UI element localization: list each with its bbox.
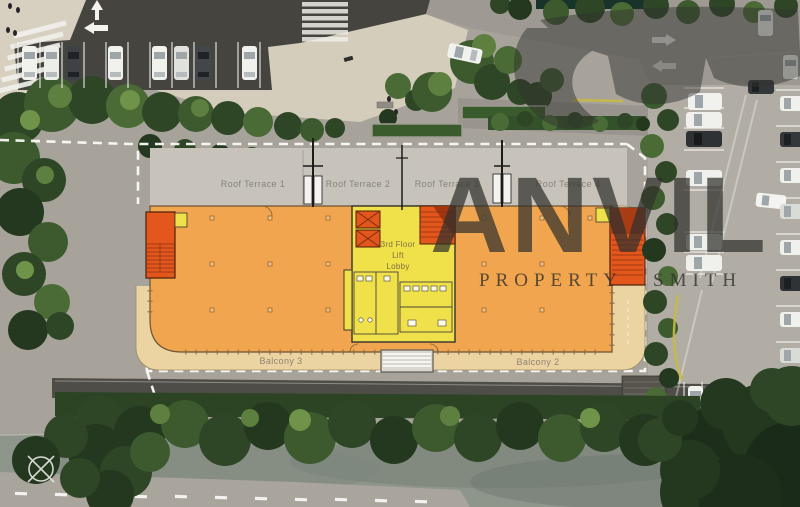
roof-terrace-2-label: Roof Terrace 2	[326, 179, 390, 189]
balcony-2-label: Balcony 2	[516, 357, 559, 367]
lift-lobby-label: 3rd Floor Lift Lobby	[381, 240, 416, 272]
lift-lobby-line2: Lift	[381, 251, 416, 262]
site-plan: Roof Terrace 1 Roof Terrace 2 Roof Terra…	[0, 0, 800, 507]
watermark-brand: ANVIL	[430, 161, 769, 269]
lift-lobby-line3: Lobby	[381, 261, 416, 272]
balcony-3-label: Balcony 3	[259, 356, 302, 366]
lift-lobby-line1: 3rd Floor	[381, 240, 416, 251]
roof-terrace-1-label: Roof Terrace 1	[221, 179, 285, 189]
loading-dock	[381, 350, 433, 372]
watermark-word-smith: SMITH	[653, 270, 742, 291]
plaza-bench	[377, 102, 393, 108]
watermark-tagline: PROPERTYSMITH	[479, 271, 742, 290]
watermark-word-property: PROPERTY	[479, 270, 623, 291]
